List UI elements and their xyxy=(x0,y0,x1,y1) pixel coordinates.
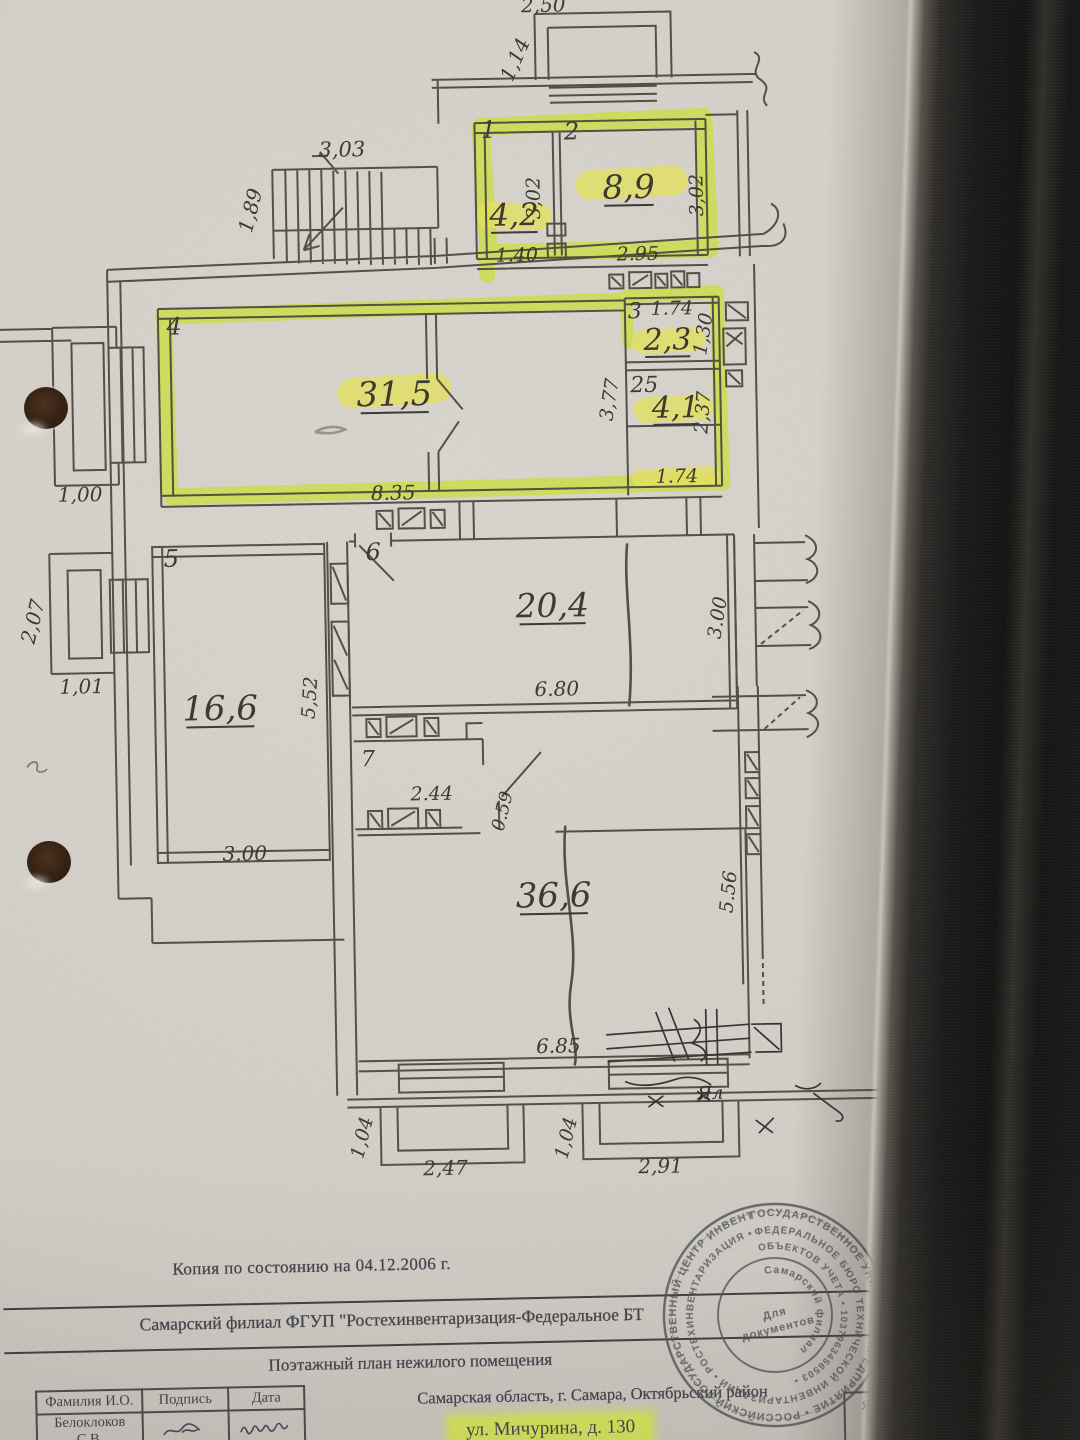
signature-table: Фамилия И.О. Подпись Дата Белоклоков С.В… xyxy=(35,1385,307,1440)
area-underline xyxy=(645,356,690,357)
header-signature: Подпись xyxy=(142,1388,228,1413)
punch-hole xyxy=(27,841,71,883)
dimension-label: 3.00 xyxy=(222,841,267,866)
dimension-label: 3,03 xyxy=(318,137,365,162)
room-area-label: 36,6 xyxy=(515,875,591,916)
room-area-label: 2,3 xyxy=(642,322,691,358)
area-underline xyxy=(520,913,588,914)
dimension-label: 2.95 xyxy=(615,243,659,266)
walls-path xyxy=(430,10,767,124)
header-name: Фамилия И.О. xyxy=(36,1389,142,1414)
date-scribble xyxy=(238,1418,296,1437)
area-underline xyxy=(491,232,537,233)
dimension-label: 2,47 xyxy=(422,1155,468,1180)
area-underline xyxy=(520,623,586,624)
area-underline xyxy=(604,205,653,206)
organization-line: Самарский филиал ФГУП "Ростехинвентариза… xyxy=(139,1304,644,1336)
walls-layer xyxy=(0,8,880,1172)
punch-hole xyxy=(24,387,68,429)
dimension-label: 1.40 xyxy=(495,244,538,267)
dimension-label: 1,01 xyxy=(59,674,104,699)
room-number-label: 5 xyxy=(163,545,179,573)
dimension-label: 6.85 xyxy=(536,1033,581,1058)
plan-title: Поэтажный план нежилого помещения xyxy=(268,1350,552,1376)
room-number-label: 4 xyxy=(165,313,182,341)
dimension-label: 2,37 xyxy=(690,390,715,436)
signature-scribble xyxy=(160,1420,212,1439)
room-area-label: 31,5 xyxy=(356,374,432,415)
dimension-label: 1.74 xyxy=(656,465,699,488)
document-photo: 2,501,143,031,89124,28,93,023,021.402.95… xyxy=(0,0,1080,1440)
dimension-label: 1,14 xyxy=(495,34,535,84)
room-area-label: 16,6 xyxy=(182,688,258,729)
dimension-label: 5,52 xyxy=(298,676,323,720)
dimension-label: 0.59 xyxy=(488,789,518,833)
dimension-label: 2,50 xyxy=(520,0,566,17)
dimension-label: 2,91 xyxy=(637,1153,683,1178)
dimension-label: 1,04 xyxy=(346,1115,378,1161)
copy-status-line: Копия по состоянию на 04.12.2006 г. xyxy=(172,1254,451,1280)
dimension-label: 3,02 xyxy=(522,177,545,220)
dimension-label: 3,02 xyxy=(685,174,708,217)
header-date: Дата xyxy=(228,1386,304,1411)
address-highlighted-line: ул. Мичурина, д. 130 xyxy=(450,1416,652,1440)
room-number-label: 7 xyxy=(361,747,375,772)
address-highlight-marker: ул. Мичурина, д. 130 xyxy=(450,1414,652,1440)
dimension-label: 5.56 xyxy=(715,870,741,914)
room-number-label: 3 xyxy=(628,299,642,324)
cell-name: Белоклоков С.В. xyxy=(37,1412,144,1440)
room-number-label: 2 xyxy=(563,117,580,145)
cell-date xyxy=(229,1409,306,1440)
dimension-label: 6.80 xyxy=(534,676,579,701)
dimension-label: 1,04 xyxy=(550,1115,582,1161)
room-area-label: 20,4 xyxy=(514,585,589,625)
plan-dimension-labels: 2,501,143,031,89124,28,93,023,021.402.95… xyxy=(4,0,748,1190)
dimension-label: 2,07 xyxy=(15,597,49,647)
area-underline xyxy=(186,726,254,727)
dimension-label: 1,00 xyxy=(58,482,103,507)
room-number-label: 1 xyxy=(481,116,497,144)
dimension-label: 3.00 xyxy=(703,595,731,640)
dimension-label: 1,89 xyxy=(233,186,267,235)
dimension-label: 2.44 xyxy=(409,783,453,806)
room-number-label: 6 xyxy=(365,538,381,566)
handwritten-note: Ял xyxy=(696,1083,723,1104)
dimension-label: 1.74 xyxy=(650,297,693,320)
room-area-label: 8,9 xyxy=(602,167,655,207)
table-row: Белоклоков С.В. xyxy=(37,1409,306,1440)
dimension-label: 3,77 xyxy=(595,376,623,422)
area-underline xyxy=(361,412,429,413)
dimension-label: 8.35 xyxy=(371,480,416,505)
cell-signature xyxy=(143,1411,230,1440)
